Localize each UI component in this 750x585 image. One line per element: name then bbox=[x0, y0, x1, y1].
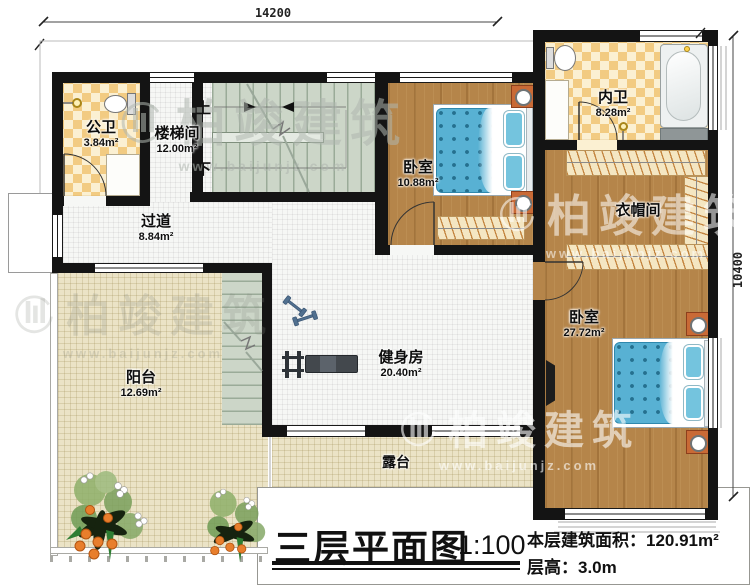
dimension-right: 10400 bbox=[731, 245, 745, 295]
toilet-tank-icon bbox=[127, 93, 136, 115]
wall bbox=[52, 72, 150, 83]
window bbox=[327, 72, 375, 83]
toilet-tank-icon bbox=[546, 47, 554, 69]
sink-counter bbox=[106, 154, 140, 196]
weight-bench-pad bbox=[320, 356, 336, 372]
nightstand bbox=[511, 85, 534, 108]
wall bbox=[262, 263, 272, 437]
door-opening bbox=[577, 140, 617, 150]
label-balcony: 阳台12.69m² bbox=[121, 370, 162, 399]
title-underline bbox=[272, 561, 520, 565]
window bbox=[708, 46, 718, 130]
window bbox=[52, 215, 63, 257]
wall bbox=[52, 83, 63, 196]
dimension-top: 14200 bbox=[248, 6, 298, 20]
nightstand bbox=[686, 312, 709, 336]
door-opening bbox=[64, 196, 106, 206]
title-underline-thin bbox=[272, 568, 520, 570]
label-hallway: 过道8.84m² bbox=[139, 214, 174, 243]
bathtub-icon bbox=[660, 44, 708, 128]
tv-icon bbox=[546, 360, 555, 406]
label-gym: 健身房20.40m² bbox=[378, 350, 423, 379]
wardrobe-bottom bbox=[566, 244, 710, 270]
wall bbox=[533, 41, 545, 262]
label-closet: 衣帽间 bbox=[615, 203, 660, 220]
bed bbox=[612, 338, 710, 428]
wall bbox=[140, 83, 150, 205]
shower-head-icon bbox=[72, 98, 82, 108]
toilet-icon bbox=[104, 95, 127, 113]
sink-counter bbox=[545, 80, 569, 140]
stairs-down-flight bbox=[222, 273, 262, 425]
dumbbells-icon bbox=[281, 294, 321, 330]
wardrobe-top bbox=[566, 150, 706, 176]
window bbox=[432, 425, 520, 437]
window bbox=[640, 30, 702, 42]
label-bedroom-small: 卧室10.88m² bbox=[398, 160, 439, 189]
drain-dot bbox=[684, 46, 690, 52]
shower-head-icon bbox=[619, 122, 628, 131]
stair-down-label: 下 bbox=[196, 158, 211, 179]
wall bbox=[375, 83, 388, 255]
bay-window bbox=[8, 193, 54, 273]
balcony-railing-left bbox=[50, 273, 58, 556]
window bbox=[708, 338, 718, 428]
label-public-bath: 公卫3.84m² bbox=[84, 120, 119, 149]
door-opening bbox=[533, 262, 545, 300]
label-stairwell: 楼梯间12.00m² bbox=[154, 126, 199, 155]
window bbox=[150, 72, 194, 83]
door-opening bbox=[390, 245, 434, 255]
closet-unit bbox=[437, 216, 525, 240]
stair-handrail bbox=[212, 132, 324, 143]
wall bbox=[375, 72, 400, 83]
toilet-icon bbox=[554, 45, 576, 71]
wall bbox=[190, 192, 388, 202]
window bbox=[400, 72, 512, 83]
potted-plant bbox=[60, 460, 160, 564]
nightstand bbox=[686, 430, 709, 454]
floor-plan: 14200 10400 柏竣建筑 www.baijunjz.com 柏竣建筑 w… bbox=[0, 0, 750, 585]
nightstand bbox=[511, 191, 534, 214]
floor-height-info: 层高：3.0m bbox=[527, 553, 617, 578]
window bbox=[565, 508, 705, 520]
bed bbox=[433, 104, 533, 196]
plan-scale: 1:100 bbox=[458, 530, 526, 561]
bench-barbell bbox=[282, 369, 304, 372]
window bbox=[95, 263, 203, 273]
stair-up-label: 上 bbox=[196, 97, 211, 118]
label-terrace: 露台 bbox=[382, 455, 410, 471]
window bbox=[287, 425, 365, 437]
potted-plant bbox=[198, 478, 282, 566]
bench-barbell bbox=[282, 356, 304, 359]
wall bbox=[533, 300, 545, 520]
wall bbox=[194, 72, 327, 83]
label-bedroom-master: 卧室27.72m² bbox=[564, 310, 605, 339]
floor-area-info: 本层建筑面积：120.91m² bbox=[527, 526, 719, 551]
wall bbox=[545, 140, 708, 150]
label-master-bath: 内卫8.28m² bbox=[596, 90, 631, 119]
